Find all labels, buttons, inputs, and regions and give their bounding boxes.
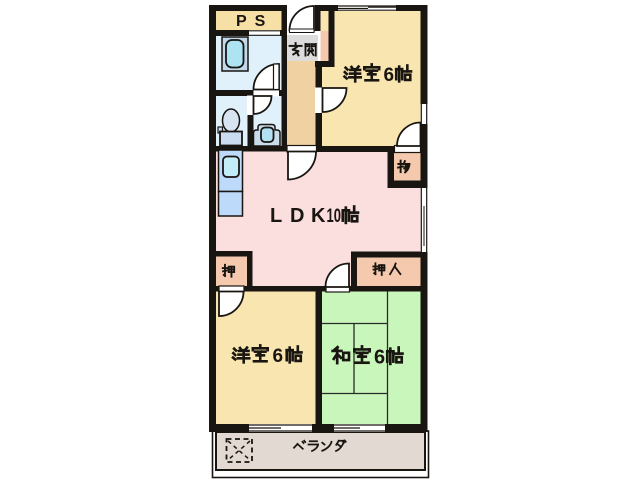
- svg-text:6: 6: [273, 346, 284, 367]
- svg-text:P S: P S: [236, 13, 267, 30]
- svg-text:D: D: [290, 205, 304, 227]
- svg-text:L: L: [270, 205, 282, 227]
- svg-text:6: 6: [384, 65, 395, 86]
- svg-text:10: 10: [327, 206, 342, 227]
- svg-text:K: K: [311, 205, 326, 227]
- svg-text:6: 6: [374, 347, 385, 369]
